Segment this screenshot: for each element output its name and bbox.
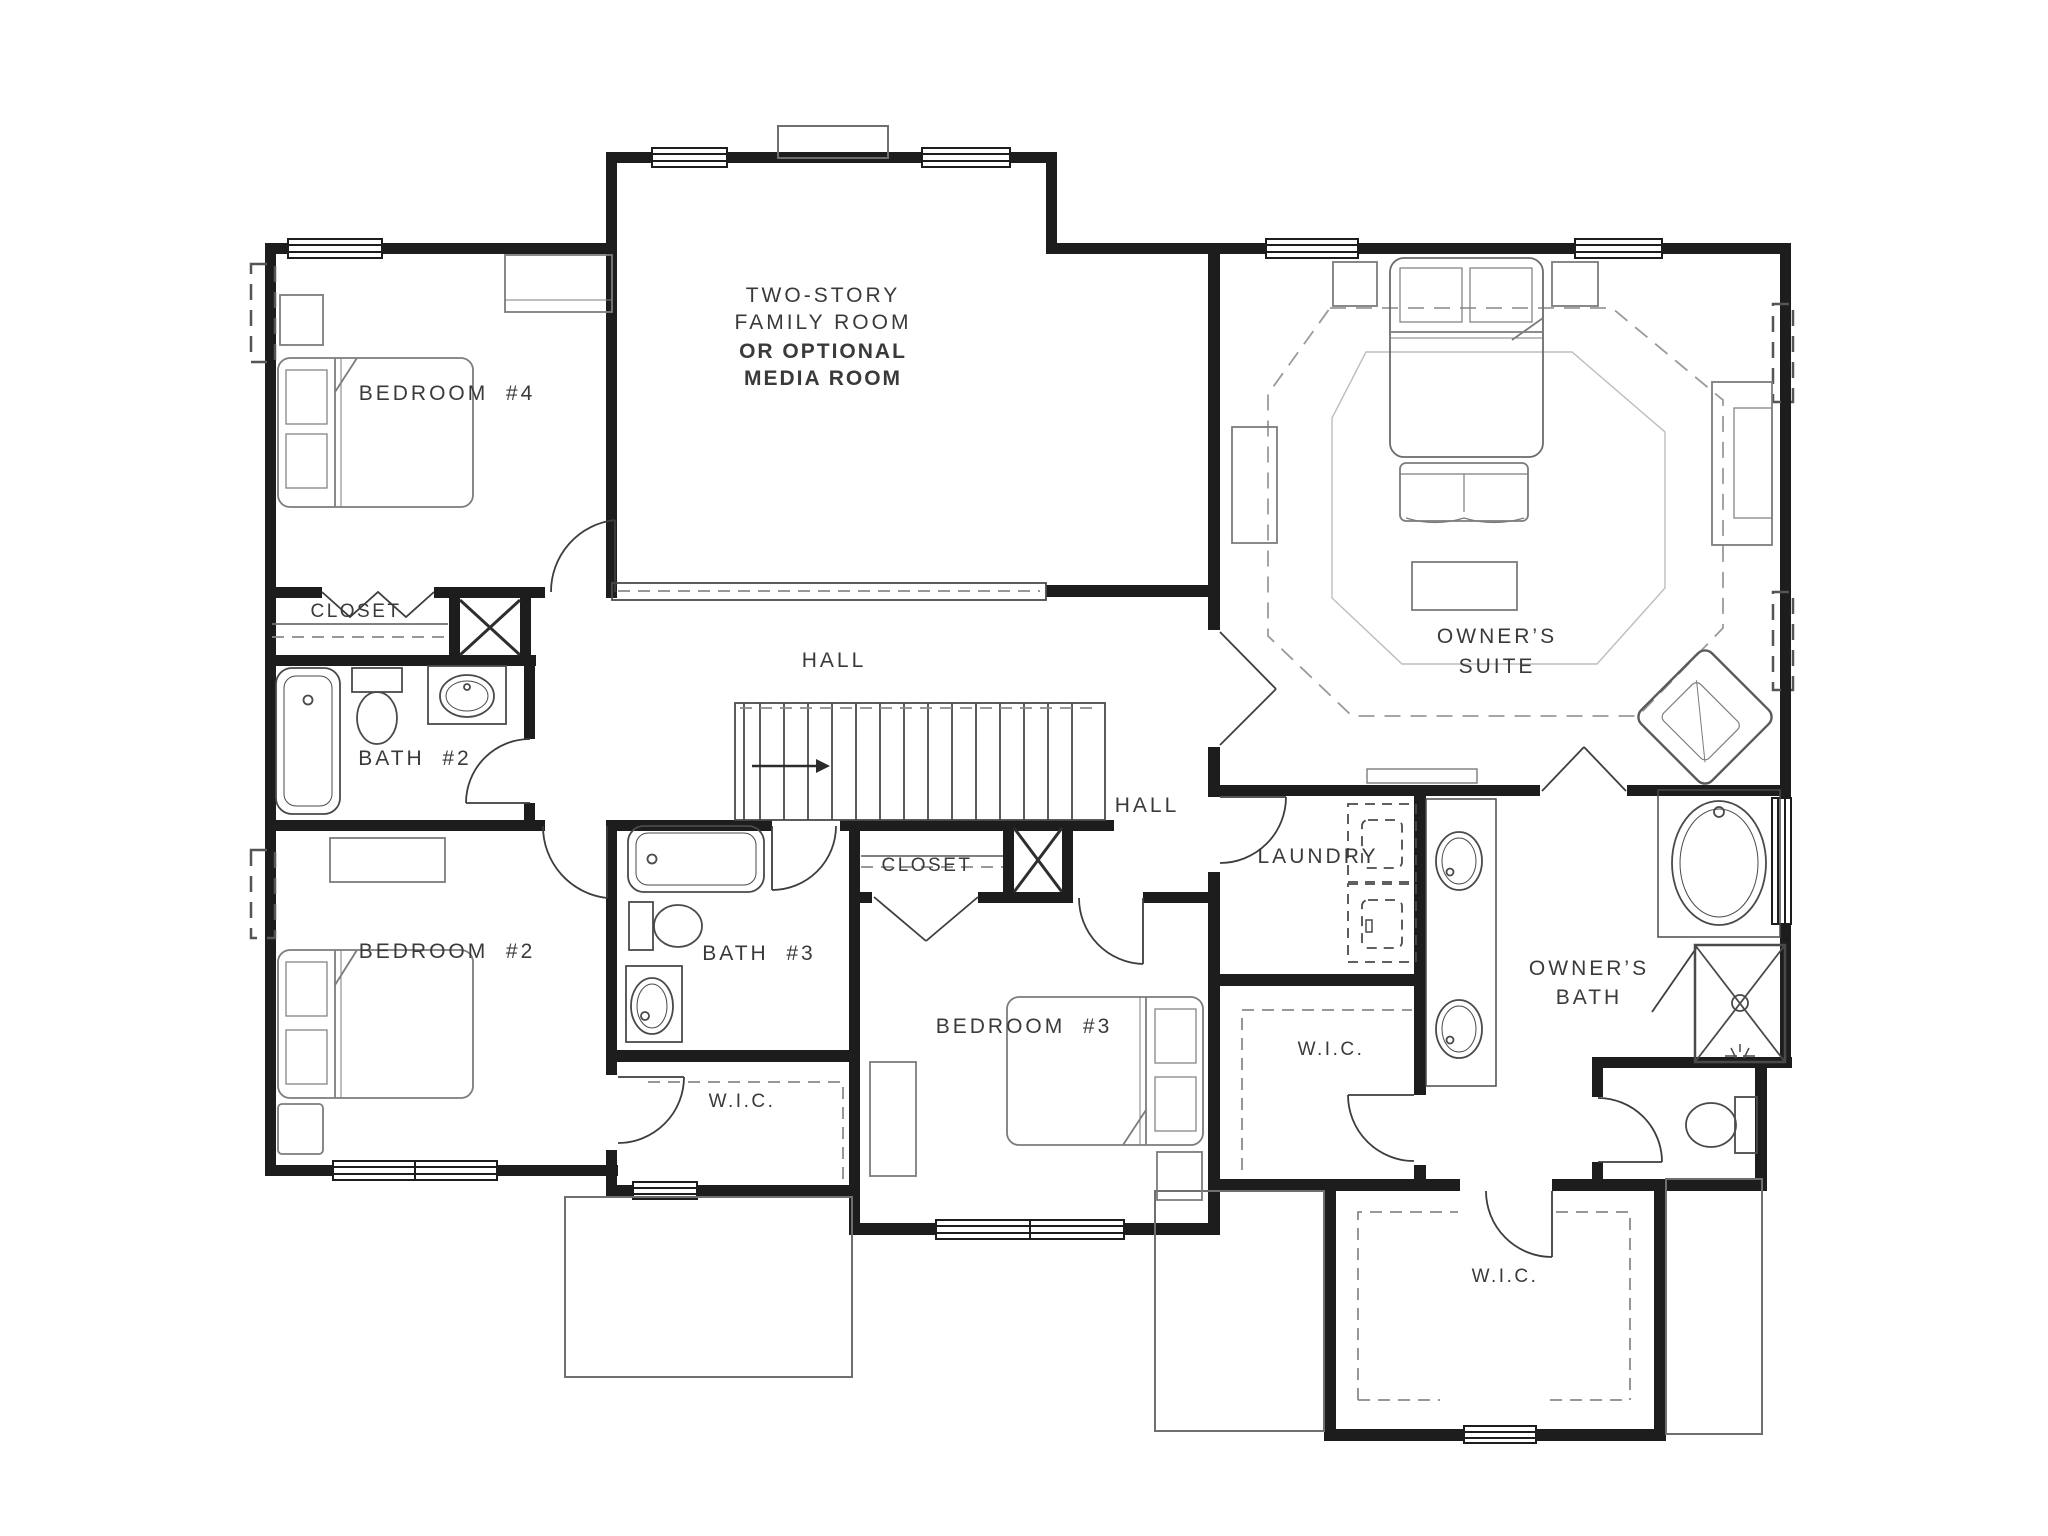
bed <box>278 950 473 1098</box>
room-label-family-room-1: TWO-STORY <box>746 284 901 308</box>
door-bedroom4 <box>551 520 615 592</box>
sink-vanity <box>626 966 682 1042</box>
soaking-tub <box>1658 790 1780 937</box>
double-door-closet3 <box>874 897 978 941</box>
door-bedroom2 <box>543 826 607 898</box>
loveseat <box>1400 463 1528 523</box>
room-label-laundry: LAUNDRY <box>1258 845 1379 869</box>
floor-plan-drawing <box>0 0 2048 1536</box>
room-label-bedroom2: BEDROOM #2 <box>359 940 536 964</box>
window <box>936 1220 1124 1239</box>
bedroom2-furniture <box>278 838 473 1154</box>
armchair <box>1634 646 1775 787</box>
window <box>922 148 1010 167</box>
dresser <box>330 838 445 882</box>
window <box>652 148 727 167</box>
room-label-bedroom3: BEDROOM #3 <box>936 1015 1113 1039</box>
window <box>333 1161 497 1180</box>
toilet <box>1686 1097 1757 1153</box>
shower <box>1695 945 1785 1062</box>
dresser <box>870 1062 916 1176</box>
room-label-hall-east: HALL <box>1115 794 1180 818</box>
room-label-owners-bath-1: OWNER’S <box>1529 957 1649 981</box>
window <box>1266 239 1358 258</box>
nightstand <box>1552 262 1598 306</box>
room-label-owners-bath-2: BATH <box>1556 986 1622 1010</box>
bath3-fixtures <box>626 826 764 1042</box>
toilet <box>629 902 702 950</box>
media-console <box>1712 382 1772 545</box>
room-label-family-room-4: MEDIA ROOM <box>744 367 902 391</box>
bath2-fixtures <box>276 666 506 814</box>
stairs <box>735 703 1105 820</box>
bed <box>1390 258 1543 457</box>
room-label-family-room-3: OR OPTIONAL <box>739 340 907 364</box>
windows-layer <box>288 148 1791 1443</box>
owners-suite-furniture <box>1232 258 1776 788</box>
room-label-wic-bedroom2: W.I.C. <box>709 1091 776 1113</box>
desk <box>505 255 612 312</box>
bedroom4-furniture <box>278 255 612 507</box>
door-wic-bedroom2 <box>618 1077 684 1143</box>
double-vanity <box>1426 799 1496 1086</box>
door-wic-owners <box>1486 1191 1552 1257</box>
washer <box>1348 804 1416 882</box>
nightstand <box>278 1104 323 1154</box>
toilet <box>352 668 402 744</box>
room-label-hall-west: HALL <box>802 649 867 673</box>
window <box>1575 239 1662 258</box>
open-railing <box>612 583 1046 600</box>
nightstand <box>1333 262 1377 306</box>
door-bath2 <box>466 739 530 803</box>
room-label-bath2: BATH #2 <box>358 747 471 771</box>
room-label-family-room-2: FAMILY ROOM <box>735 311 912 335</box>
chase-x-marks <box>460 600 1062 892</box>
door-bedroom3 <box>1079 898 1143 964</box>
dresser <box>1232 427 1277 543</box>
room-label-bath3: BATH #3 <box>702 942 815 966</box>
bed <box>278 358 473 507</box>
room-label-owners-suite-2: SUITE <box>1459 655 1536 679</box>
room-label-owners-suite-1: OWNER’S <box>1437 625 1557 649</box>
room-label-closet-bedroom4: CLOSET <box>310 601 401 623</box>
door-water-closet <box>1598 1098 1662 1162</box>
ottoman <box>1412 562 1517 610</box>
nightstand <box>280 295 323 345</box>
console-shelf <box>1367 769 1477 783</box>
walls-layer <box>265 152 1792 1441</box>
nightstand <box>1157 1152 1202 1200</box>
double-door-owners-bath <box>1542 747 1626 791</box>
bathtub <box>276 668 340 814</box>
area-rug <box>1332 352 1665 664</box>
door-wic-hall <box>1348 1095 1414 1161</box>
door-bath3 <box>772 826 836 890</box>
door-shower <box>1652 947 1697 1012</box>
sink-vanity <box>428 666 506 724</box>
window <box>1464 1426 1536 1443</box>
room-label-wic-owners: W.I.C. <box>1472 1266 1539 1288</box>
room-label-closet-bedroom3: CLOSET <box>881 855 972 877</box>
window <box>288 239 382 258</box>
room-label-wic-hall: W.I.C. <box>1298 1039 1365 1061</box>
room-label-bedroom4: BEDROOM #4 <box>359 382 536 406</box>
laundry-appliances <box>1348 804 1416 962</box>
window <box>1772 798 1791 924</box>
floor-plan-page: TWO-STORY FAMILY ROOM OR OPTIONAL MEDIA … <box>0 0 2048 1536</box>
dryer <box>1348 884 1416 962</box>
stair-direction-arrow <box>816 759 830 773</box>
double-door-owners-suite <box>1220 632 1276 745</box>
bathtub <box>628 826 764 892</box>
